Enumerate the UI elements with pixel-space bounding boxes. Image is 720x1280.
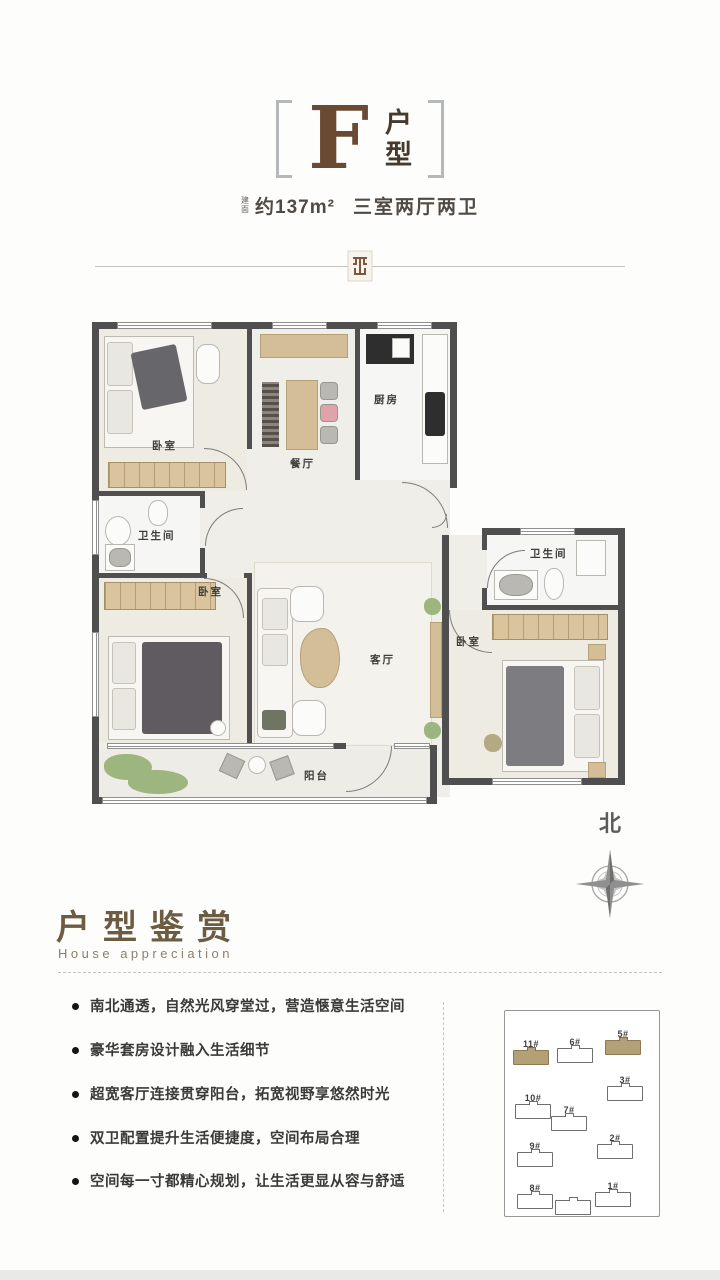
unit-type-label: 户 型	[385, 109, 412, 170]
bench	[196, 344, 220, 384]
wall	[430, 745, 437, 804]
cabinet	[262, 382, 279, 447]
wall	[92, 322, 99, 804]
blanket	[142, 642, 222, 734]
toilet	[544, 568, 564, 600]
window	[92, 500, 99, 555]
building-footprint	[607, 1086, 643, 1101]
building-footprint	[555, 1200, 591, 1215]
unit-char-1: 户	[385, 109, 412, 137]
kitchen-sink	[392, 338, 410, 358]
feature-item: 双卫配置提升生活便捷度，空间布局合理	[72, 1130, 444, 1149]
window	[492, 778, 582, 785]
balcony-window	[102, 797, 427, 804]
tub-basin	[109, 548, 131, 567]
siteplan-building: 9#	[517, 1141, 553, 1167]
cooktop	[425, 392, 445, 436]
building-footprint	[597, 1144, 633, 1159]
building-footprint	[517, 1194, 553, 1209]
window	[272, 322, 327, 329]
dining-table	[286, 380, 318, 450]
feature-item: 南北通透，自然光风穿堂过，营造惬意生活空间	[72, 998, 444, 1017]
window	[92, 632, 99, 717]
feature-item: 超宽客厅连接贯穿阳台，拓宽视野享悠然时光	[72, 1086, 444, 1105]
feature-text: 南北通透，自然光风穿堂过，营造惬意生活空间	[90, 998, 405, 1017]
siteplan-building: 6#	[557, 1037, 593, 1063]
wall	[482, 605, 625, 610]
window	[377, 322, 432, 329]
siteplan-building: 8#	[517, 1183, 553, 1209]
building-footprint	[595, 1192, 631, 1207]
room-count: 三室两厅两卫	[353, 192, 479, 219]
area-value: 约137m²	[255, 192, 335, 219]
label-bedroom1: 卧室	[152, 438, 177, 453]
wall	[482, 535, 487, 550]
wall	[618, 528, 625, 785]
nightstand	[588, 644, 606, 660]
wall	[92, 573, 207, 578]
wall	[200, 491, 205, 508]
building-footprint	[517, 1152, 553, 1167]
wall	[247, 578, 252, 745]
dining-chair	[320, 382, 338, 400]
sofa-cushion	[262, 598, 288, 630]
section-subtitle: House appreciation	[58, 946, 233, 961]
sliding-window	[394, 743, 430, 749]
left-bracket-decoration	[276, 100, 292, 178]
armchair	[290, 586, 324, 622]
pillow	[107, 342, 133, 386]
wall	[355, 329, 360, 480]
blanket	[506, 666, 564, 766]
feature-item: 豪华套房设计融入生活细节	[72, 1042, 444, 1061]
plant	[424, 598, 441, 615]
brand-emblem-icon	[347, 250, 373, 282]
nightstand	[588, 762, 606, 778]
bullet-icon	[72, 1178, 79, 1185]
sink	[105, 516, 131, 546]
toilet	[148, 500, 168, 526]
pillow	[112, 642, 136, 684]
balcony-plants	[128, 770, 188, 794]
feature-text: 空间每一寸都精心规划，让生活更显从容与舒适	[90, 1173, 405, 1192]
window	[117, 322, 212, 329]
label-bath2: 卫生间	[530, 546, 568, 561]
label-bedroom2: 卧室	[198, 584, 223, 599]
bottom-strip	[0, 1270, 720, 1280]
label-kitchen: 厨房	[374, 392, 399, 407]
right-bracket-decoration	[428, 100, 444, 178]
feature-item: 空间每一寸都精心规划，让生活更显从容与舒适	[72, 1173, 444, 1192]
bullet-icon	[72, 1091, 79, 1098]
unit-char-2: 型	[385, 141, 412, 169]
plant	[484, 734, 502, 752]
building-footprint	[605, 1040, 641, 1055]
sofa-throw	[262, 710, 286, 730]
label-balcony: 阳台	[304, 768, 329, 783]
sideboard	[260, 334, 348, 358]
section-title: 户型鉴赏	[56, 900, 244, 949]
pillow	[574, 666, 600, 710]
building-footprint	[515, 1104, 551, 1119]
siteplan-building: 1#	[595, 1181, 631, 1207]
building-footprint	[557, 1048, 593, 1063]
window	[520, 528, 575, 535]
siteplan-building	[555, 1189, 591, 1215]
armchair	[292, 700, 326, 736]
wardrobe	[492, 614, 608, 640]
coffee-table	[300, 628, 340, 688]
pillow	[574, 714, 600, 758]
label-living: 客厅	[370, 652, 395, 667]
area-prefix: 建面	[241, 197, 249, 214]
siteplan-building: 2#	[597, 1133, 633, 1159]
pillow	[112, 688, 136, 730]
feature-list: 南北通透，自然光风穿堂过，营造惬意生活空间 豪华套房设计融入生活细节 超宽客厅连…	[72, 998, 444, 1217]
siteplan-building: 7#	[551, 1105, 587, 1131]
wall	[92, 491, 205, 496]
tv-cabinet	[430, 622, 442, 718]
dashed-divider	[58, 972, 662, 973]
pillow	[107, 390, 133, 434]
compass: 北	[572, 806, 648, 929]
label-bath1: 卫生间	[138, 528, 176, 543]
building-footprint	[513, 1050, 549, 1065]
bullet-icon	[72, 1003, 79, 1010]
bullet-icon	[72, 1135, 79, 1142]
bullet-icon	[72, 1047, 79, 1054]
compass-rose-icon	[574, 844, 646, 924]
siteplan-building: 11#	[513, 1039, 549, 1065]
wall	[450, 482, 457, 488]
sliding-window	[107, 743, 334, 749]
wall	[247, 329, 252, 449]
dining-chair	[320, 426, 338, 444]
siteplan-building: 10#	[515, 1093, 551, 1119]
sofa-cushion	[262, 634, 288, 666]
feature-text: 双卫配置提升生活便捷度，空间布局合理	[90, 1130, 360, 1149]
wall	[450, 322, 457, 482]
unit-subtitle: 建面 约137m² 三室两厅两卫	[0, 192, 720, 219]
siteplan-building: 5#	[605, 1029, 641, 1055]
balcony-table	[248, 756, 266, 774]
wall	[442, 535, 449, 778]
plant	[424, 722, 441, 739]
washstand	[576, 540, 606, 576]
floor-plan: 卧室 餐厅 厨房 卫生间 卧室 客厅 阳台 卫生间 卧室	[92, 322, 627, 812]
unit-letter: F	[308, 102, 369, 175]
feature-text: 豪华套房设计融入生活细节	[90, 1042, 270, 1061]
dining-chair	[320, 404, 338, 422]
site-plan: 11# 6# 5# 3# 10# 7# 2# 9# 8# 1#	[504, 1010, 660, 1217]
label-bedroom3: 卧室	[456, 634, 481, 649]
north-label: 北	[572, 806, 648, 838]
stool	[210, 720, 226, 736]
label-dining: 餐厅	[290, 456, 315, 471]
wall	[334, 743, 346, 749]
tub-basin	[499, 574, 533, 596]
wardrobe	[108, 462, 226, 488]
building-footprint	[551, 1116, 587, 1131]
header: F 户 型 建面 约137m² 三室两厅两卫	[0, 100, 720, 219]
siteplan-building: 3#	[607, 1075, 643, 1101]
vertical-dashed-divider	[443, 1002, 444, 1212]
feature-text: 超宽客厅连接贯穿阳台，拓宽视野享悠然时光	[90, 1086, 390, 1105]
